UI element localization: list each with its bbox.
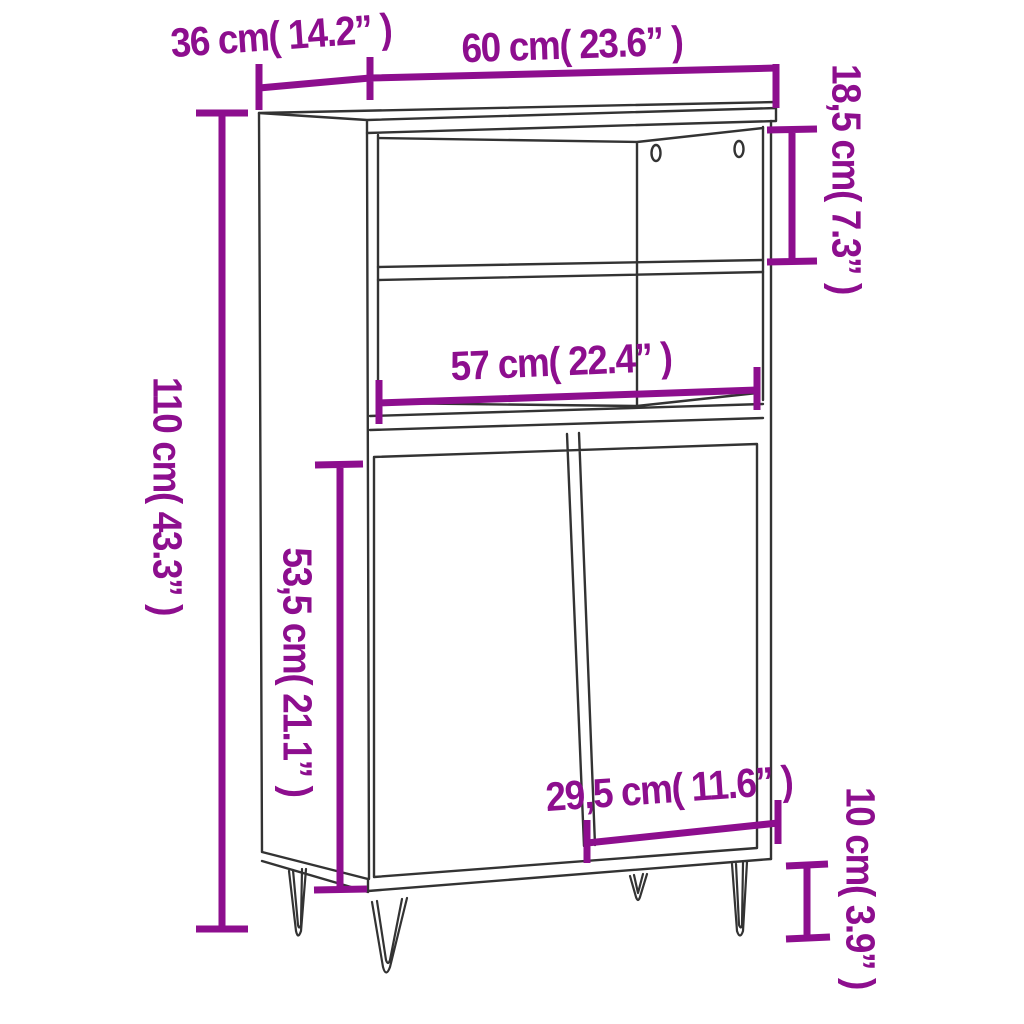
leg-front-right	[732, 862, 747, 936]
leg-back-right	[630, 874, 647, 900]
cabinet-top-board	[259, 102, 776, 133]
middle-shelf	[378, 260, 763, 280]
dim-width-label: 60 cm( 23.6” )	[461, 21, 683, 70]
leg-front-left	[372, 898, 407, 973]
dim-depth-line	[259, 64, 370, 110]
dim-leg-height-line	[786, 864, 830, 939]
dimension-diagram: 36 cm( 14.2” ) 60 cm( 23.6” ) 18,5 cm( 7…	[0, 0, 1024, 1024]
dim-top-shelf-height-label: 18,5 cm( 7.3” )	[826, 64, 867, 294]
cabinet-right-edge	[763, 121, 771, 859]
dim-top-shelf-height-line	[767, 129, 817, 262]
dim-total-height-line	[196, 113, 248, 929]
shelf-pin-hole	[652, 145, 661, 161]
dim-door-height-line	[314, 464, 367, 890]
dim-leg-height-label: 10 cm( 3.9” )	[840, 787, 881, 989]
dim-door-height-label: 53,5 cm( 21.1” )	[277, 547, 318, 796]
dim-total-height-label: 110 cm( 43.3” )	[147, 377, 188, 615]
bottom-board	[368, 859, 771, 891]
shelf-pin-hole	[735, 141, 744, 157]
dim-inner-width-label: 57 cm( 22.4” )	[450, 337, 673, 388]
leg-back-left	[289, 869, 306, 936]
